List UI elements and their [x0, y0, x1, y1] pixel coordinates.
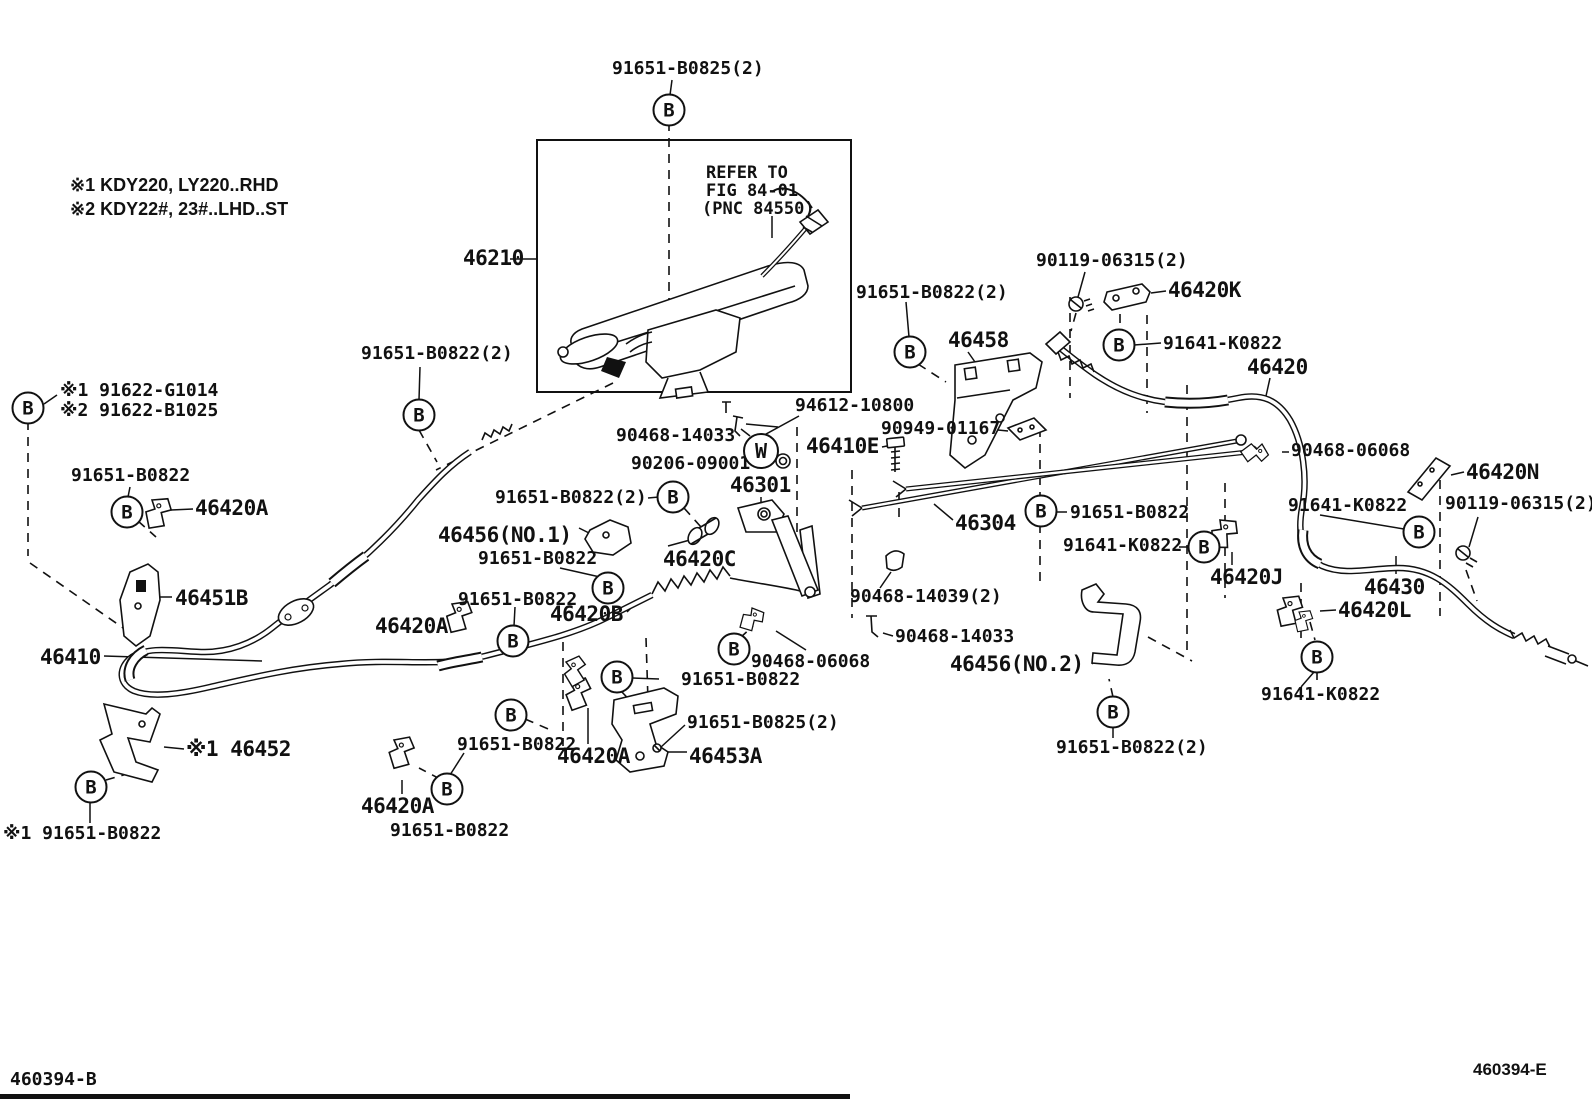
part-label-46452: ※1 46452	[186, 738, 291, 760]
callout-B-13: B	[497, 625, 530, 658]
callout-B-6: B	[111, 496, 144, 529]
fastener-label-91651-B0825-top: 91651-B0825(2)	[612, 60, 764, 79]
fastener-label-90468-14033-a: 90468-14033	[616, 427, 735, 446]
part-label-46210: 46210	[463, 247, 524, 269]
fastener-label-90949-01167: 90949-01167	[881, 420, 1000, 439]
bottom-border-line	[0, 1094, 850, 1099]
fastener-label-90119-06315-b: 90119-06315(2)	[1445, 495, 1592, 514]
fastener-label-90468-14033-b: 90468-14033	[895, 628, 1014, 647]
callout-B-5: B	[12, 392, 45, 425]
fastener-label-91651-B0822-2-a: 91651-B0822(2)	[361, 345, 513, 364]
callout-B-10: B	[1403, 516, 1436, 549]
note-2: ※2 KDY22#, 23#..LHD..ST	[70, 200, 288, 219]
fastener-label-91641-K0822-a: 91641-K0822	[1163, 335, 1282, 354]
part-label-46420A-b: 46420A	[375, 615, 448, 637]
callout-B-12: B	[1301, 641, 1334, 674]
fastener-label-91651-B0822-c: 91651-B0822	[478, 550, 597, 569]
part-label-46420C: 46420C	[663, 548, 736, 570]
fastener-label-91651-B0822-j: ※1 91651-B0822	[3, 825, 161, 844]
part-label-46420A-c: 46420A	[557, 745, 630, 767]
part-label-46451B: 46451B	[175, 587, 248, 609]
fastener-label-91651-B0822-2-b: 91651-B0822(2)	[856, 284, 1008, 303]
fastener-label-94612-10800: 94612-10800	[795, 397, 914, 416]
callout-B-18: B	[75, 771, 108, 804]
callout-W: W	[743, 433, 779, 469]
fastener-label-91651-B0825-b: 91651-B0825(2)	[687, 714, 839, 733]
part-label-46420A-d: 46420A	[361, 795, 434, 817]
fastener-label-91641-K0822-d: 91641-K0822	[1261, 686, 1380, 705]
fastener-label-91622-B1025: ※2 91622-B1025	[60, 402, 218, 421]
callout-B-14: B	[601, 661, 634, 694]
callout-B-19: B	[1097, 696, 1130, 729]
part-label-46304: 46304	[955, 512, 1016, 534]
part-label-46456-no1: 46456(NO.1)	[438, 524, 572, 546]
fastener-label-90119-06315-top: 90119-06315(2)	[1036, 252, 1188, 271]
part-label-46430: 46430	[1364, 576, 1425, 598]
fastener-label-91651-B0822-2-c: 91651-B0822(2)	[495, 489, 647, 508]
callout-B-7: B	[657, 481, 690, 514]
callout-B-1: B	[653, 94, 686, 127]
fastener-label-91641-K0822-c: 91641-K0822	[1063, 537, 1182, 556]
part-label-46420J: 46420J	[1210, 566, 1283, 588]
fastener-label-91651-B0822-2-h: 91651-B0822(2)	[1056, 739, 1208, 758]
callout-B-17: B	[431, 773, 464, 806]
fastener-label-90468-06068-a: 90468-06068	[1291, 442, 1410, 461]
fastener-label-91651-B0822-i: 91651-B0822	[390, 822, 509, 841]
part-label-46410E: 46410E	[806, 435, 879, 457]
part-label-46458: 46458	[948, 329, 1009, 351]
part-label-46420L: 46420L	[1338, 599, 1411, 621]
part-label-46453A: 46453A	[689, 745, 762, 767]
diagram-artwork	[0, 0, 1592, 1099]
callout-B-2: B	[403, 399, 436, 432]
callout-B-4: B	[1103, 329, 1136, 362]
part-label-46410: 46410	[40, 646, 101, 668]
fastener-label-91651-B0822-b: 91651-B0822	[71, 467, 190, 486]
callout-B-16: B	[495, 699, 528, 732]
part-label-46420K: 46420K	[1168, 279, 1241, 301]
part-label-46301: 46301	[730, 474, 791, 496]
footer-left-code: 460394-B	[10, 1071, 97, 1090]
fastener-label-90468-14039: 90468-14039(2)	[850, 588, 1002, 607]
note-1: ※1 KDY220, LY220..RHD	[70, 176, 279, 195]
part-label-46420: 46420	[1247, 356, 1308, 378]
callout-B-8: B	[592, 572, 625, 605]
fastener-label-91651-B0822-f: 91651-B0822	[681, 671, 800, 690]
callout-B-9: B	[1025, 495, 1058, 528]
parts-diagram-page: { "diagram": { "notes": { "n1": "※1 KDY2…	[0, 0, 1592, 1099]
callout-B-3: B	[894, 336, 927, 369]
callout-B-11: B	[1188, 531, 1221, 564]
fastener-label-91641-K0822-b: 91641-K0822	[1288, 497, 1407, 516]
part-label-46420A-a: 46420A	[195, 497, 268, 519]
callout-B-15: B	[718, 633, 751, 666]
handbrake-lever-drawing	[557, 189, 828, 399]
parking-brake-lever-box	[537, 140, 851, 398]
part-label-46420B: 46420B	[550, 603, 623, 625]
fastener-label-91622-G1014: ※1 91622-G1014	[60, 382, 218, 401]
refer-note-line3: (PNC 84550)	[702, 201, 815, 219]
fastener-label-91651-B0822-d: 91651-B0822	[1070, 504, 1189, 523]
footer-right-code: 460394-E	[1473, 1061, 1547, 1079]
part-label-46456-no2: 46456(NO.2)	[950, 653, 1084, 675]
part-label-46420N: 46420N	[1466, 461, 1539, 483]
fastener-label-90206-09001: 90206-09001	[631, 455, 750, 474]
